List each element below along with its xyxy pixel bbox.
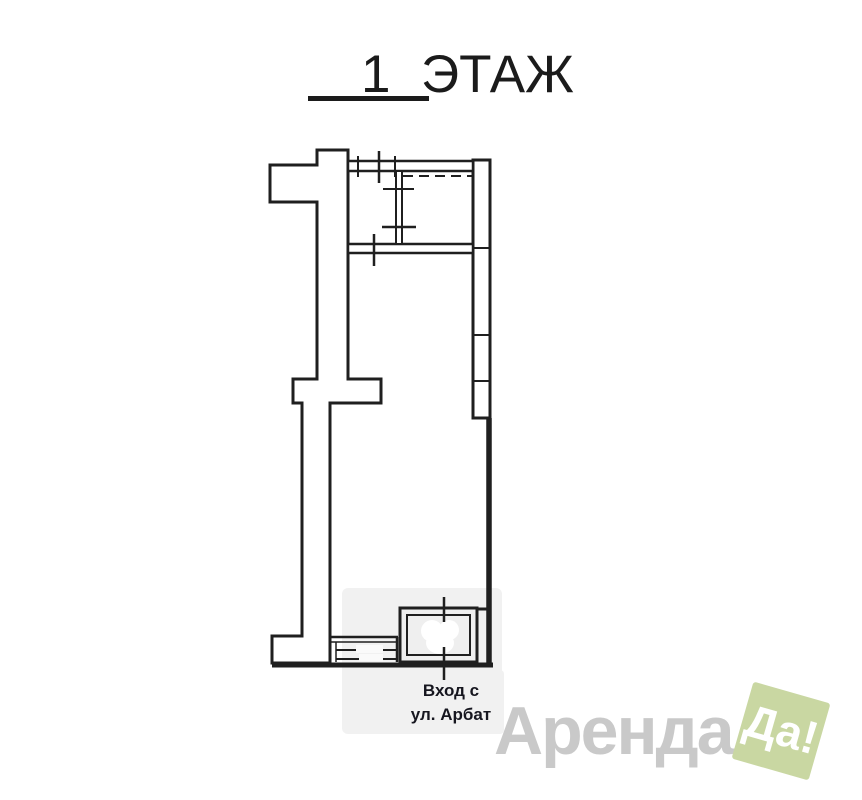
entrance-label-line1: Вход с [392, 679, 510, 703]
rooms-bottom-wall [348, 234, 473, 266]
page: 1 ЭТАЖ [0, 0, 862, 800]
top-wall [348, 151, 473, 183]
left-wall [270, 150, 381, 663]
room-partition [382, 171, 416, 244]
watermark-badge-text: Да! [740, 697, 823, 762]
entrance-label: Вход с ул. Арбат [392, 679, 510, 727]
watermark-brand: Аренда [494, 697, 733, 765]
entrance-label-line2: ул. Арбат [392, 703, 510, 727]
